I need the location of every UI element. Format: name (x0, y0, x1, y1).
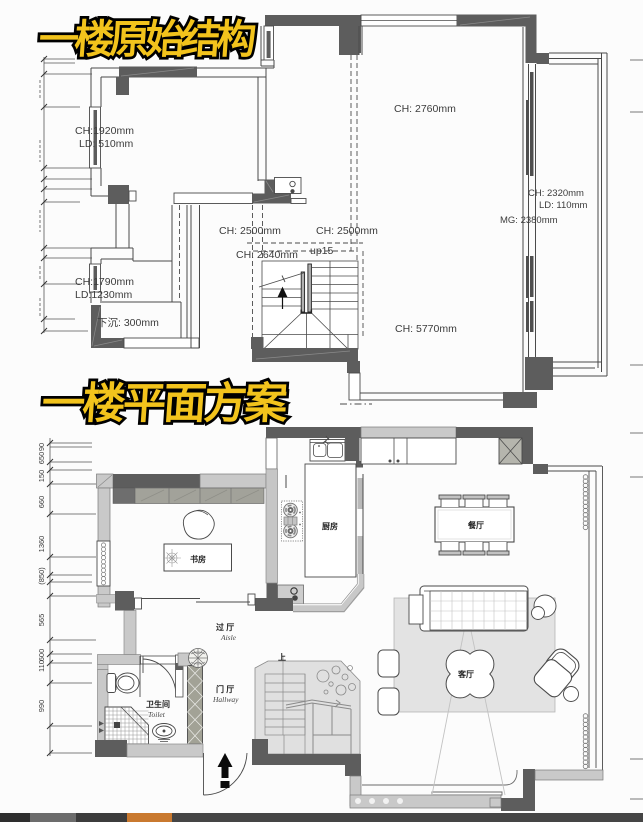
svg-text:Toilet: Toilet (148, 710, 166, 719)
svg-text:CH: 5770mm: CH: 5770mm (395, 323, 457, 335)
svg-text:565: 565 (37, 614, 46, 627)
svg-text:CH: 2500mm: CH: 2500mm (219, 225, 281, 237)
svg-text:下沉: 300mm: 下沉: 300mm (97, 316, 159, 329)
svg-text:150: 150 (37, 470, 46, 483)
svg-text:990: 990 (37, 700, 46, 713)
svg-text:客厅: 客厅 (457, 669, 474, 679)
svg-text:CH: 2320mm: CH: 2320mm (528, 188, 584, 199)
svg-text:660: 660 (37, 496, 46, 509)
svg-text:MG: 2380mm: MG: 2380mm (500, 215, 558, 226)
svg-text:书房: 书房 (190, 554, 206, 564)
svg-text:90: 90 (37, 443, 46, 451)
svg-text:1360: 1360 (37, 536, 46, 553)
svg-text:up15: up15 (310, 245, 334, 257)
svg-text:600: 600 (37, 649, 46, 662)
svg-text:餐厅: 餐厅 (467, 520, 484, 530)
svg-text:(850): (850) (37, 567, 46, 585)
svg-text:CH:1920mm: CH:1920mm (75, 125, 134, 137)
svg-text:过 厅: 过 厅 (216, 622, 234, 632)
svg-text:Hallway: Hallway (212, 695, 239, 704)
svg-text:CH: 2760mm: CH: 2760mm (394, 103, 456, 115)
svg-text:CH: 2640mm: CH: 2640mm (236, 249, 298, 261)
svg-text:一楼平面方案: 一楼平面方案 (40, 380, 290, 428)
svg-text:650: 650 (37, 452, 46, 465)
svg-text:门 厅: 门 厅 (216, 684, 234, 694)
svg-text:卫生间: 卫生间 (146, 699, 170, 709)
svg-text:LD: 110mm: LD: 110mm (539, 200, 587, 211)
svg-text:一楼原始结构: 一楼原始结构 (37, 18, 256, 62)
svg-text:CH: 2500mm: CH: 2500mm (316, 225, 378, 237)
svg-text:厨房: 厨房 (322, 521, 338, 531)
svg-text:LD: 510mm: LD: 510mm (79, 138, 134, 150)
svg-text:CH:1790mm: CH:1790mm (75, 276, 134, 288)
svg-text:LD:1230mm: LD:1230mm (75, 289, 132, 301)
svg-text:110: 110 (37, 660, 46, 672)
svg-text:Aisle: Aisle (220, 633, 237, 642)
svg-text:上: 上 (278, 652, 286, 662)
